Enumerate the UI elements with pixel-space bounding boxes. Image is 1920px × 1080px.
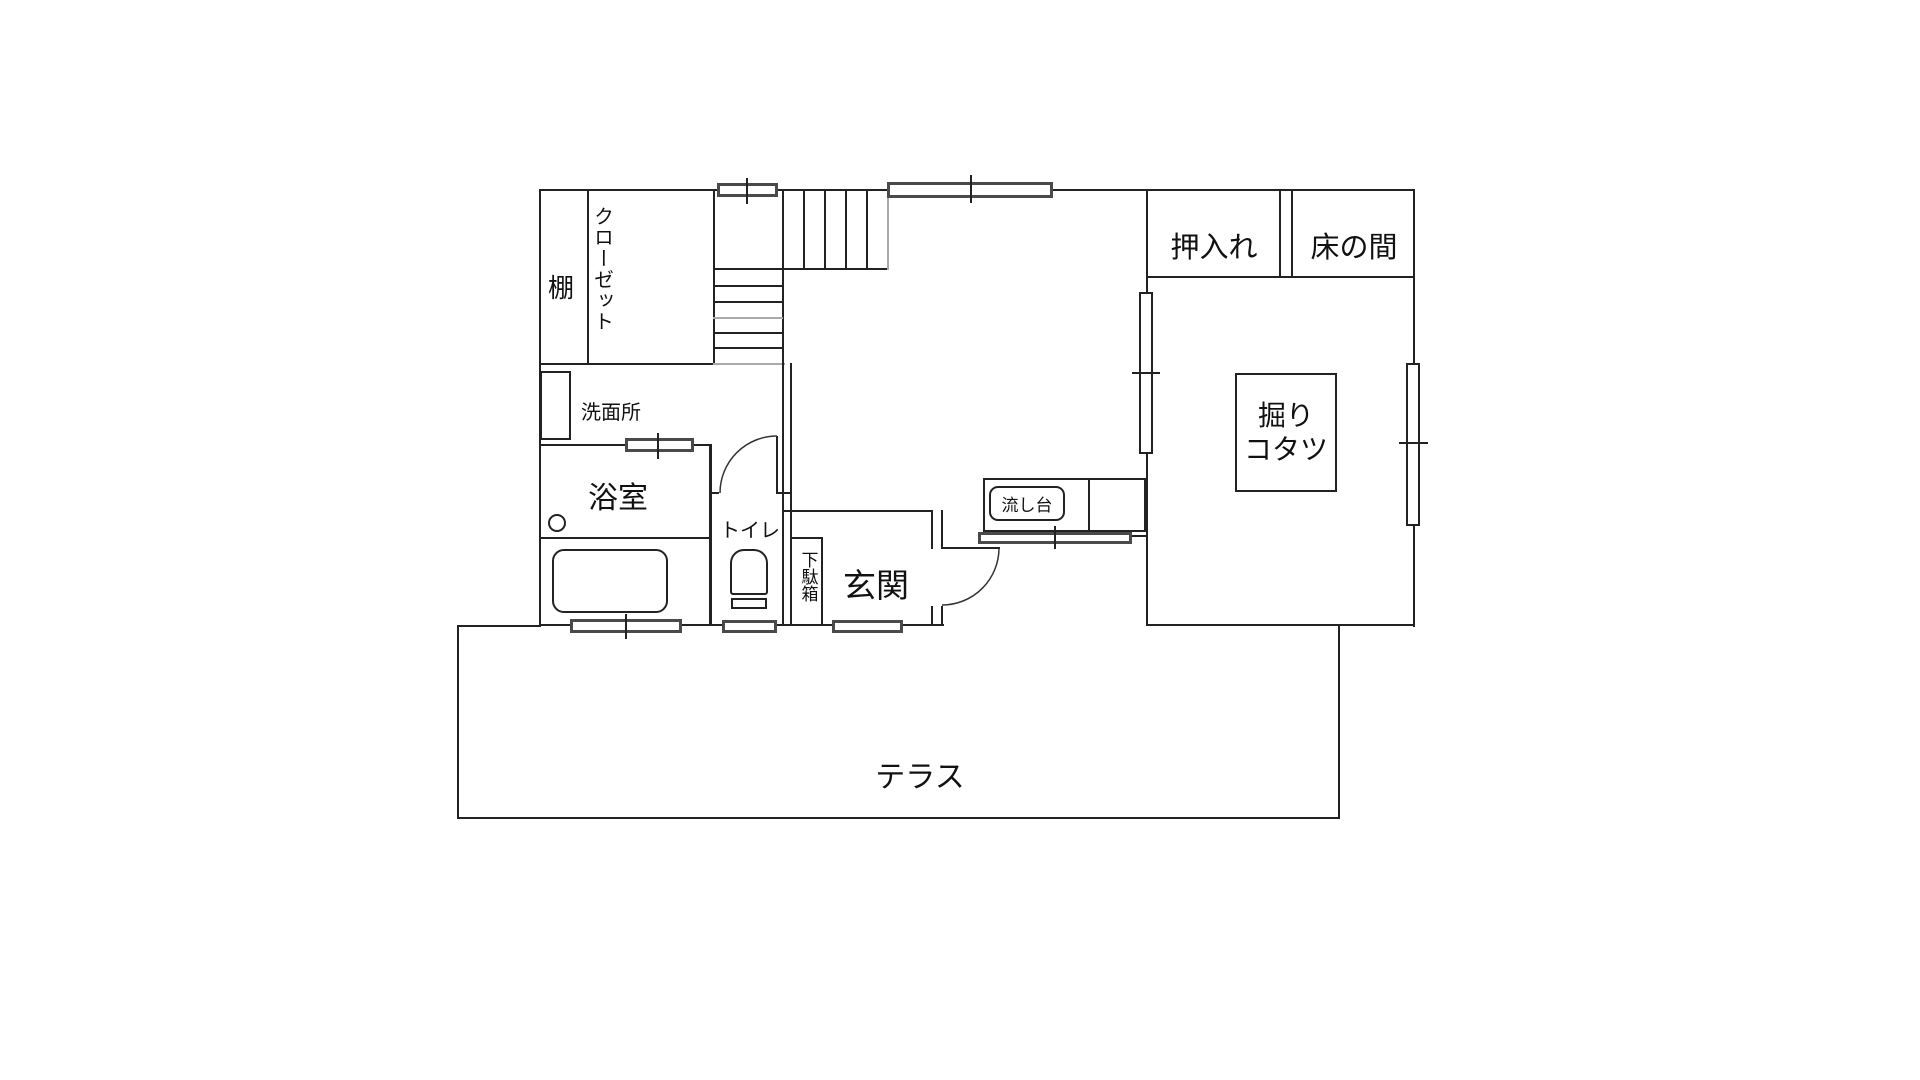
stair-step-line xyxy=(845,189,847,269)
kitchen-south-window-tick xyxy=(1054,526,1056,549)
sink-label: 流し台 xyxy=(1002,491,1053,516)
stair-open-edge-gray xyxy=(887,189,889,270)
terrace-wall-right xyxy=(1338,624,1340,819)
terrace-wall-bottom xyxy=(457,817,1340,819)
kitchen-counter-divider xyxy=(1088,478,1090,532)
stair-step-line xyxy=(866,189,868,269)
tatami-east-sliding-door xyxy=(1406,363,1420,526)
stair-step-line xyxy=(713,285,783,287)
oshiire-tokonoma-divider-b xyxy=(1291,189,1293,278)
front-door-leaf xyxy=(942,547,1000,549)
kotatsu-label-line1: 掘り xyxy=(1258,399,1314,433)
tokonoma-label: 床の間 xyxy=(1310,224,1397,266)
hall-wall-inner-line xyxy=(790,363,792,625)
shoe-cabinet-wall xyxy=(821,537,823,625)
terrace-label: テラス xyxy=(875,752,964,796)
shelf-label: 棚 xyxy=(548,268,574,305)
closet-right-wall xyxy=(713,189,715,365)
tatami-west-sliding-door-tick xyxy=(1132,372,1160,374)
bathtub xyxy=(552,549,668,613)
sink-unit: 流し台 xyxy=(989,486,1065,521)
stair-run-bottom-edge xyxy=(713,268,889,270)
entrance-east-wall-outer-upper xyxy=(931,510,933,549)
bathroom-toilet-wall xyxy=(709,444,712,625)
wall-bottom-tatami xyxy=(1146,624,1415,626)
tatami-east-sliding-door-tick xyxy=(1399,442,1428,444)
kitchen-wall-connector xyxy=(1132,535,1146,537)
entrance-east-wall-inner-upper xyxy=(941,510,943,549)
entrance-east-wall-outer-lower xyxy=(931,606,933,625)
bathroom-door-window xyxy=(625,438,694,452)
entrance-top-wall xyxy=(783,510,932,512)
entrance-east-wall-inner-lower xyxy=(941,606,943,625)
bathroom-drain-circle xyxy=(548,514,566,532)
bathroom-label: 浴室 xyxy=(588,473,648,517)
front-door-arc xyxy=(942,548,999,605)
toilet-south-window xyxy=(722,620,777,633)
shoe-cabinet-top xyxy=(792,537,822,539)
closet-bottom-wall xyxy=(539,363,715,365)
washroom-label: 洗面所 xyxy=(581,396,641,425)
stair-step-line xyxy=(803,189,805,269)
stair-bottom-gray-line xyxy=(713,363,785,365)
stair-break-line xyxy=(713,317,783,319)
terrace-wall-left xyxy=(457,625,459,819)
kotatsu: 掘り コタツ xyxy=(1235,373,1337,492)
washroom-vanity-counter xyxy=(540,371,571,440)
stair-step-line xyxy=(713,301,783,303)
toilet-bowl xyxy=(730,549,768,595)
stair-step-line xyxy=(824,189,826,269)
door-arcs-layer xyxy=(0,0,1920,1080)
shoe-cabinet-label: 下駄箱 xyxy=(796,551,821,602)
toilet-label: トイレ xyxy=(720,514,780,543)
bathroom-divider xyxy=(539,537,711,539)
stair-step-line xyxy=(713,347,783,349)
bathroom-top-wall-west xyxy=(539,444,627,446)
bathroom-south-window-tick xyxy=(625,614,627,639)
kotatsu-label-line2: コタツ xyxy=(1244,433,1328,467)
living-top-window-tick xyxy=(970,175,972,203)
bathroom-door-window-tick xyxy=(657,433,659,459)
stair-step-line xyxy=(713,332,783,334)
stair-right-wall xyxy=(782,189,784,625)
closet-label: クローゼット xyxy=(588,206,617,332)
oshiire-label: 押入れ xyxy=(1170,224,1257,266)
entrance-label: 玄関 xyxy=(843,559,909,607)
terrace-wall-top xyxy=(457,625,541,627)
stairs-top-window-tick xyxy=(746,178,748,204)
toilet-base xyxy=(731,598,767,609)
toilet-top-wall-stub-east xyxy=(777,492,792,494)
toilet-top-wall-stub-west xyxy=(709,492,719,494)
oshiire-tokonoma-divider-a xyxy=(1279,189,1281,278)
floor-plan: テラス 棚 クローゼット 洗面所 浴室 トイレ 下駄箱 玄関 xyxy=(0,0,1920,1080)
toilet-door-arc xyxy=(720,436,777,493)
toilet-door-leaf xyxy=(776,436,778,494)
entrance-south-window xyxy=(832,620,903,633)
